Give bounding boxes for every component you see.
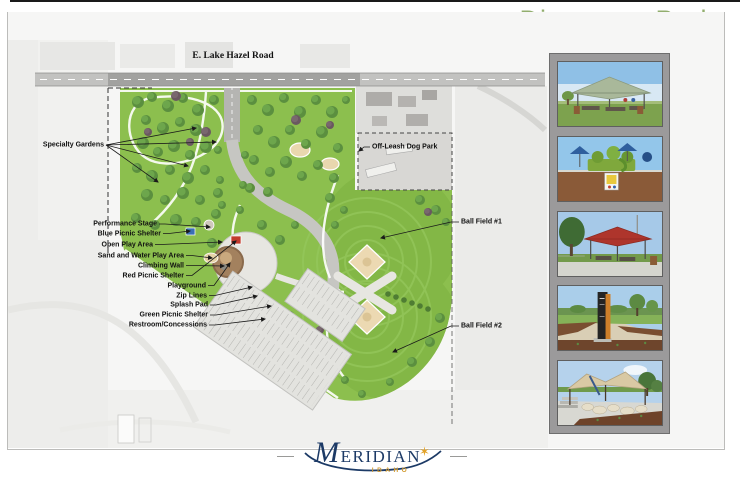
ball-field-2-label: Ball Field #2	[461, 323, 502, 330]
amenity-label-1: Blue Picnic Shelter	[98, 230, 161, 237]
amenity-label-3: Sand and Water Play Area	[98, 252, 184, 259]
top-border-line	[10, 0, 740, 2]
amenity-label-8: Splash Pad	[170, 302, 208, 309]
ball-field-1-label: Ball Field #1	[461, 219, 502, 226]
amenity-label-7: Zip Lines	[176, 292, 207, 299]
specialty-gardens-label: Specialty Gardens	[43, 142, 104, 149]
photo-playground-shade-umbrellas	[557, 136, 663, 202]
off-leash-dog-park-label: Off-Leash Dog Park	[372, 144, 437, 151]
road-label: E. Lake Hazel Road	[192, 51, 273, 61]
photo-strip	[549, 53, 670, 434]
amenity-label-2: Open Play Area	[102, 241, 154, 248]
amenity-label-9: Green Picnic Shelter	[140, 312, 208, 319]
meridian-logo: MERIDIAN✶ IDAHO	[291, 436, 453, 478]
logo-state: IDAHO	[329, 467, 453, 474]
photo-stage-shade-canopy	[557, 360, 663, 426]
amenity-label-5: Red Picnic Shelter	[123, 272, 184, 279]
amenity-label-10: Restroom/Concessions	[129, 322, 207, 329]
amenity-label-6: Playground	[167, 282, 206, 289]
amenity-label-4: Climbing Wall	[138, 262, 184, 269]
page-frame: E. Lake Hazel Road Specialty Gardens Off…	[7, 12, 725, 450]
photo-picnic-shelter-green-roof	[557, 61, 663, 127]
photo-picnic-shelter-red-roof	[557, 211, 663, 277]
photo-park-entry-sign-pillar	[557, 285, 663, 351]
amenity-label-0: Performance Stage	[93, 221, 157, 228]
logo-wordmark: MERIDIAN	[314, 436, 421, 470]
